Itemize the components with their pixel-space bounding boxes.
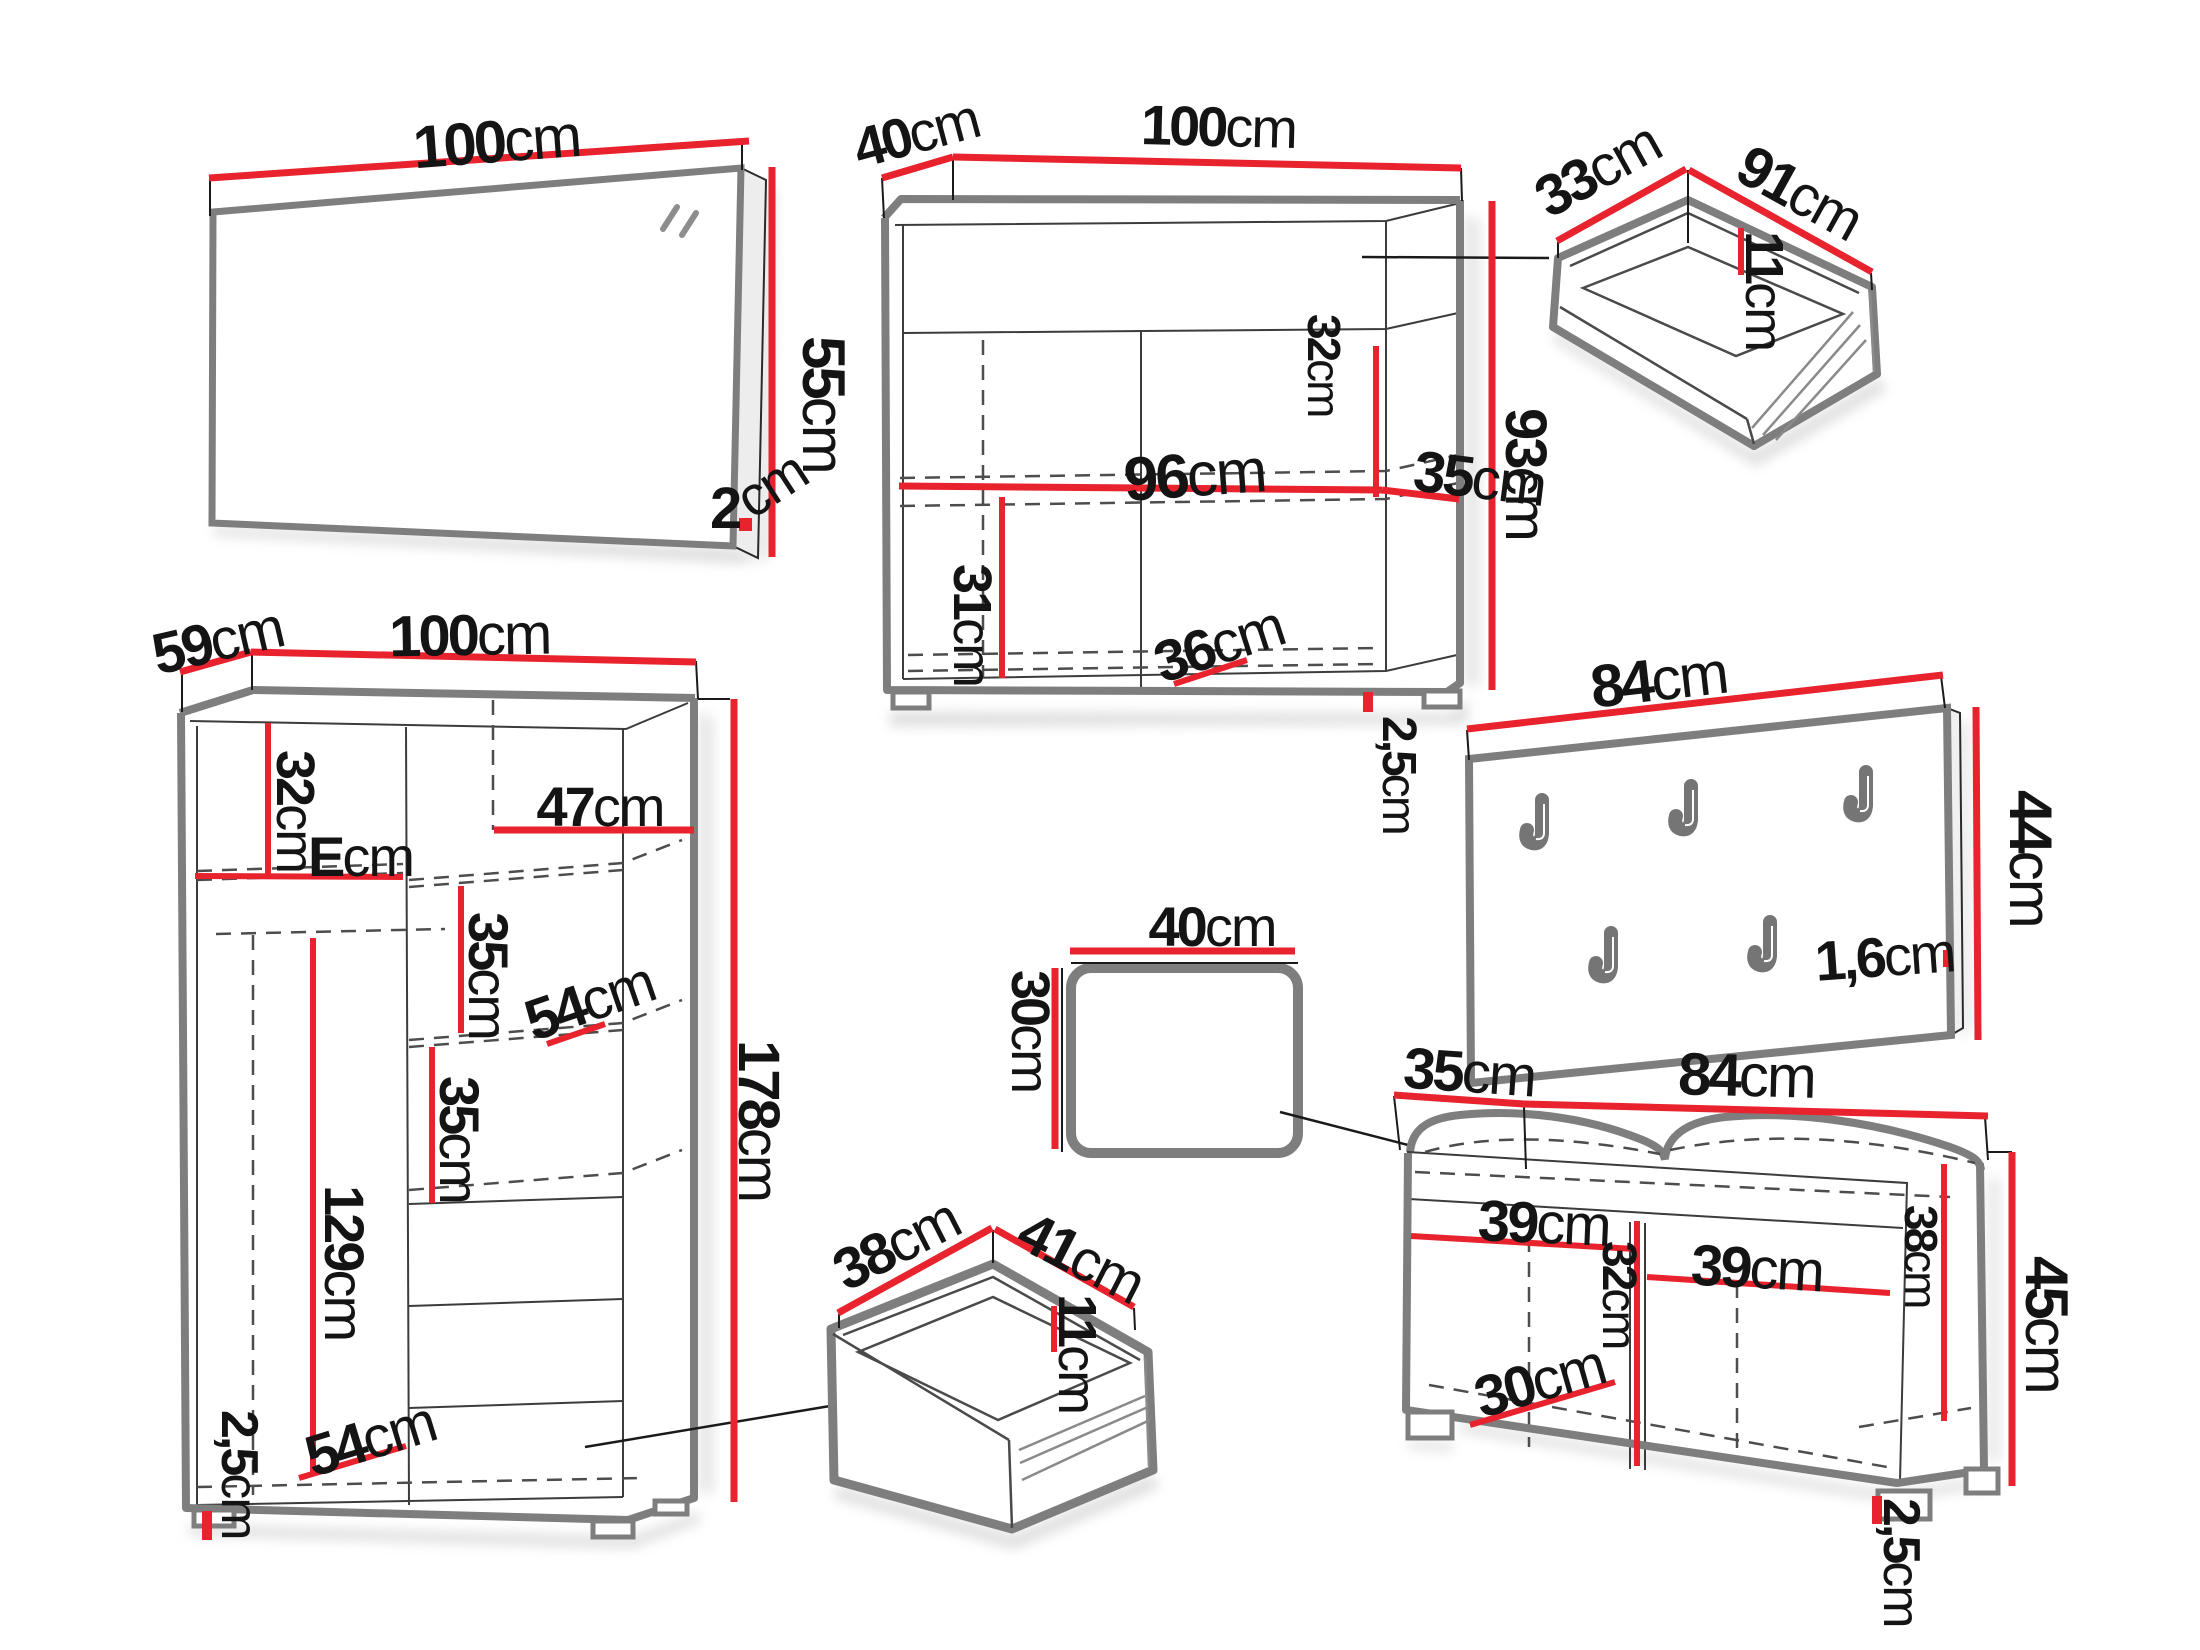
svg-text:32cm: 32cm — [1592, 1241, 1645, 1348]
svg-text:2,5cm: 2,5cm — [1372, 716, 1425, 834]
svg-text:39cm: 39cm — [1477, 1188, 1612, 1259]
svg-text:11cm: 11cm — [1047, 1294, 1107, 1413]
svg-text:38cm: 38cm — [1895, 1205, 1947, 1308]
svg-text:32cm: 32cm — [1298, 314, 1350, 417]
svg-text:47cm: 47cm — [537, 775, 664, 838]
svg-text:35cm: 35cm — [428, 1076, 491, 1203]
svg-text:35cm: 35cm — [1401, 1036, 1537, 1110]
svg-text:100cm: 100cm — [411, 102, 583, 181]
svg-text:178cm: 178cm — [726, 1040, 791, 1201]
svg-text:1,6cm: 1,6cm — [1813, 920, 1957, 993]
svg-text:96cm: 96cm — [1122, 436, 1268, 515]
svg-text:35cm: 35cm — [457, 912, 520, 1039]
svg-text:Ecm: Ecm — [308, 825, 413, 888]
svg-text:100cm: 100cm — [1140, 93, 1297, 160]
svg-text:44cm: 44cm — [1997, 790, 2064, 927]
svg-text:100cm: 100cm — [389, 602, 551, 670]
svg-text:55cm: 55cm — [790, 336, 857, 473]
svg-text:129cm: 129cm — [313, 1185, 376, 1340]
svg-text:2,5cm: 2,5cm — [210, 1410, 268, 1539]
svg-text:40cm: 40cm — [1149, 895, 1276, 958]
svg-text:45cm: 45cm — [2013, 1256, 2080, 1393]
svg-text:30cm: 30cm — [1000, 970, 1060, 1092]
svg-text:2,5cm: 2,5cm — [1872, 1498, 1930, 1627]
svg-text:39cm: 39cm — [1689, 1233, 1824, 1305]
svg-text:31cm: 31cm — [942, 564, 1002, 686]
svg-text:11cm: 11cm — [1734, 231, 1794, 350]
svg-text:84cm: 84cm — [1677, 1040, 1815, 1111]
